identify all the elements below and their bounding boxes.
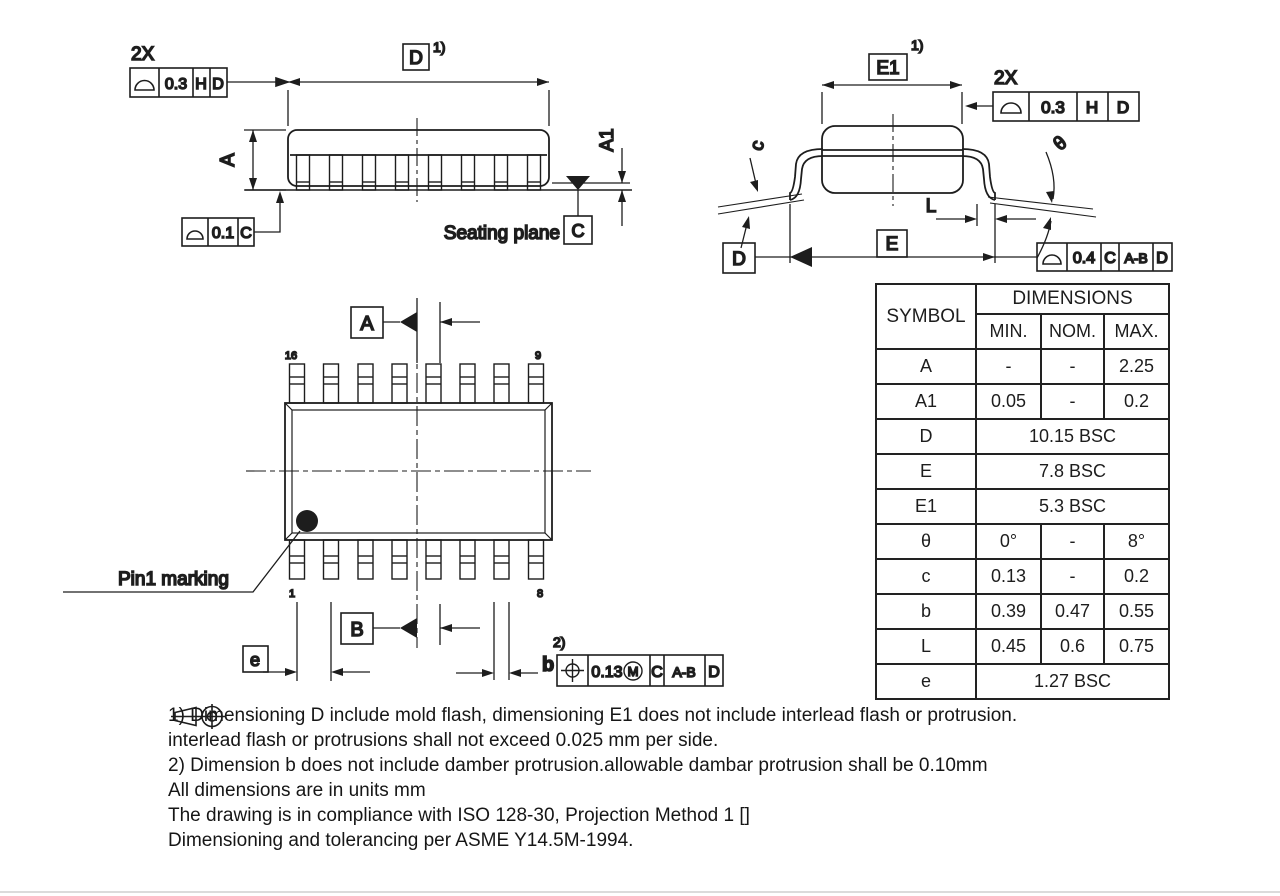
- end-fcf-top: 0.3 H D: [965, 92, 1139, 121]
- table-header-min: MIN.: [976, 314, 1041, 349]
- table-row: b0.390.470.55: [876, 594, 1169, 629]
- side-fcf-seating: 0.1 C: [182, 191, 284, 246]
- end-view: E1 1) 2X 0.3 H D: [718, 37, 1172, 273]
- side-package-body: [288, 130, 549, 186]
- dim-l-label: L: [926, 196, 937, 217]
- note-line-5-bracket: ]: [745, 805, 750, 826]
- side-dim-a: [244, 130, 286, 190]
- leader-arrow: [276, 78, 288, 86]
- end-qty-label: 2X: [994, 68, 1018, 89]
- table-row: A--2.25: [876, 349, 1169, 384]
- fcf-datum: D: [1117, 98, 1129, 117]
- note-line-5: The drawing is in compliance with ISO 12…: [168, 803, 1017, 828]
- note-line-2: interlead flash or protrusions shall not…: [168, 728, 1017, 753]
- dim-a1-label: A1: [597, 128, 618, 151]
- note-line-5-text: The drawing is in compliance with ISO 12…: [168, 805, 745, 826]
- position-icon: [561, 659, 584, 682]
- table-row: A10.05-0.2: [876, 384, 1169, 419]
- datum-b-triangle: [400, 618, 417, 638]
- side-package-pins: [297, 155, 541, 190]
- dim-e1-label: E1: [876, 58, 899, 79]
- table-row: E15.3 BSC: [876, 489, 1169, 524]
- table-row: θ0°-8°: [876, 524, 1169, 559]
- end-dim-c: [718, 158, 804, 248]
- note-line-6: Dimensioning and tolerancing per ASME Y1…: [168, 828, 1017, 853]
- note-line-1: 1) Dimensioning D include mold flash, di…: [168, 703, 1017, 728]
- leader-arrow: [276, 191, 284, 203]
- side-qty-label: 2X: [131, 44, 155, 65]
- dim-e-pitch-label: e: [250, 650, 260, 670]
- table-row: L0.450.60.75: [876, 629, 1169, 664]
- dim-theta-label: θ: [1050, 132, 1072, 155]
- dim-c-label: c: [746, 138, 769, 153]
- side-fcf-top: 0.3 H D: [130, 68, 288, 97]
- dim-a-label: A: [217, 153, 239, 167]
- top-fcf-b: 0.13 M C A-B D: [557, 655, 723, 686]
- fcf-datum: A-B: [1124, 250, 1147, 266]
- pin1-marking-label: Pin1 marking: [118, 569, 229, 590]
- table-row: e1.27 BSC: [876, 664, 1169, 699]
- side-dim-a1: [552, 148, 630, 226]
- fcf-datum: D: [708, 664, 720, 681]
- fcf-tolerance: 0.3: [165, 76, 187, 93]
- fcf-datum: A-B: [672, 664, 695, 680]
- note-line-4: All dimensions are in units mm: [168, 778, 1017, 803]
- pin-16-label: 16: [285, 350, 297, 362]
- note-line-3: 2) Dimension b does not include damber p…: [168, 753, 1017, 778]
- pin-9-label: 9: [535, 350, 541, 362]
- datum-c-label: C: [572, 221, 585, 241]
- seating-plane-label: Seating plane: [444, 223, 560, 244]
- profile-surface-icon: [1001, 103, 1021, 113]
- fcf-datum: C: [240, 225, 252, 242]
- table-header-max: MAX.: [1104, 314, 1169, 349]
- package-outline-drawing-page: 2X 0.3 H D D 1): [0, 0, 1280, 896]
- top-dim-b: [456, 602, 538, 680]
- fcf-datum: C: [1104, 250, 1116, 267]
- fcf-datum: H: [1086, 98, 1098, 117]
- profile-surface-icon: [187, 231, 203, 239]
- datum-b-label: B: [350, 619, 363, 641]
- pin-1-label: 1: [289, 588, 295, 600]
- dim-b-label: b: [542, 654, 554, 676]
- table-header-symbol: SYMBOL: [876, 284, 976, 349]
- notes-block: 1) Dimensioning D include mold flash, di…: [168, 703, 1017, 853]
- table-header-dimensions: DIMENSIONS: [976, 284, 1169, 314]
- table-row: c0.13-0.2: [876, 559, 1169, 594]
- note-ref-1: 1): [911, 37, 923, 53]
- dim-e-label: E: [886, 234, 899, 255]
- end-dim-e: [723, 204, 1037, 273]
- table-header-nom: NOM.: [1041, 314, 1104, 349]
- pin-8-label: 8: [537, 588, 543, 600]
- table-row: D10.15 BSC: [876, 419, 1169, 454]
- dim-d-label: D: [409, 48, 423, 69]
- side-view: 2X 0.3 H D D 1): [130, 39, 632, 246]
- top-view: A: [63, 298, 723, 686]
- note-ref-2: 2): [553, 634, 565, 650]
- datum-a-triangle: [400, 312, 417, 332]
- fcf-datum: D: [212, 76, 224, 93]
- top-dim-e: [243, 602, 370, 681]
- fcf-tolerance: 0.4: [1073, 250, 1095, 267]
- fcf-tolerance: 0.1: [212, 225, 234, 242]
- datum-d-triangle: [790, 247, 812, 267]
- fcf-tolerance: 0.3: [1041, 98, 1065, 117]
- note-ref-1: 1): [433, 39, 445, 55]
- profile-surface-icon: [135, 81, 154, 90]
- first-angle-projection-icon: [170, 703, 228, 730]
- fcf-datum: C: [651, 664, 663, 681]
- fcf-tolerance: 0.13: [591, 664, 622, 681]
- pin1-marking-dot: [296, 510, 318, 532]
- fcf-datum: H: [195, 76, 207, 93]
- fcf-modifier: M: [628, 664, 639, 679]
- fcf-datum: D: [1156, 250, 1168, 267]
- end-dim-theta: [988, 152, 1096, 258]
- profile-surface-icon: [1043, 255, 1061, 264]
- end-fcf-bottom: 0.4 C A-B D: [1037, 243, 1172, 271]
- table-row: E7.8 BSC: [876, 454, 1169, 489]
- leader-arrow: [965, 102, 977, 110]
- datum-d-label: D: [732, 249, 746, 270]
- dimensions-table: SYMBOL DIMENSIONS MIN. NOM. MAX. A--2.25…: [875, 283, 1170, 700]
- datum-a-label: A: [360, 313, 374, 335]
